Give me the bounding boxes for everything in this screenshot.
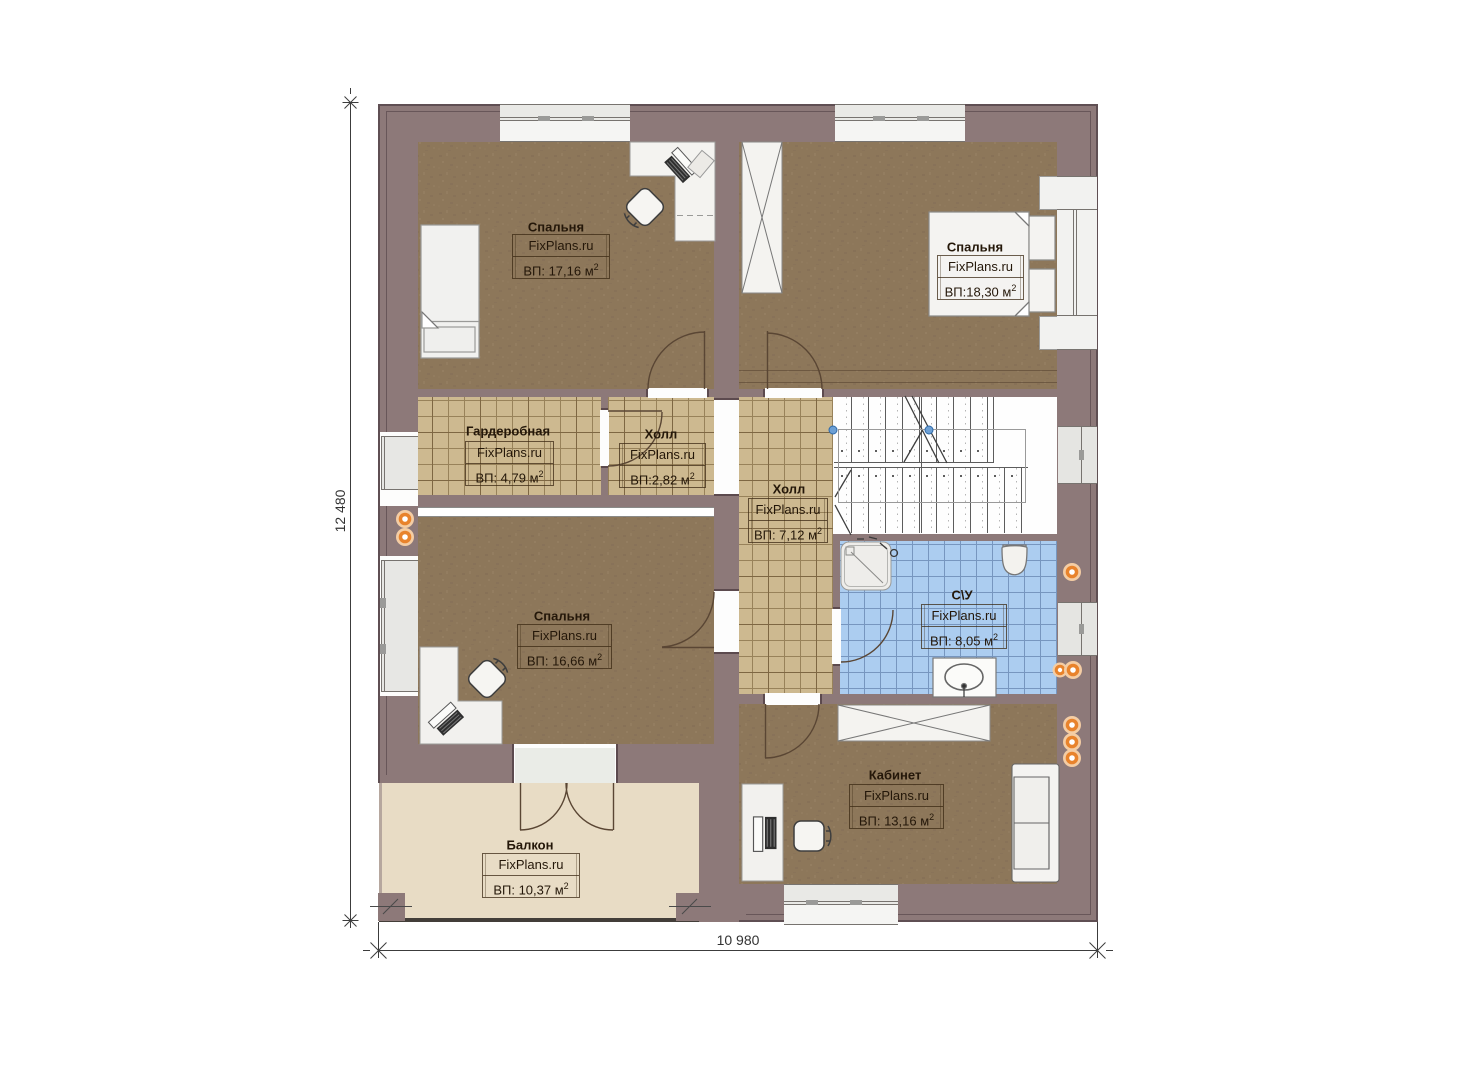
svg-text:10 980: 10 980 xyxy=(717,932,760,948)
svg-text:12 480: 12 480 xyxy=(332,489,348,532)
